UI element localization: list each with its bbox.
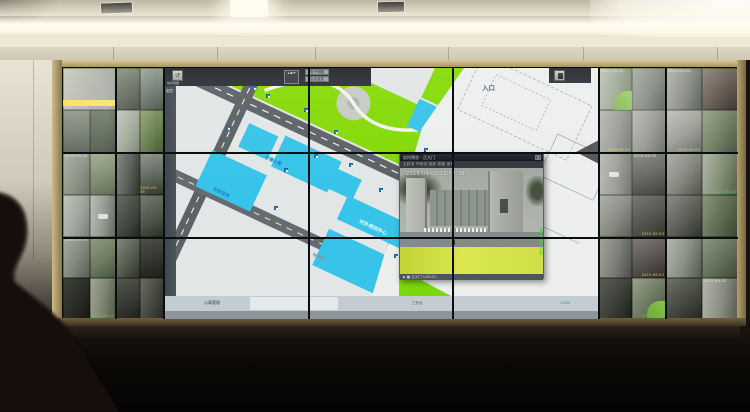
yellow-overlay-strip (63, 100, 116, 106)
layer-panel-label: 图层 (166, 89, 173, 94)
parked-car (98, 214, 108, 219)
camera-feed[interactable] (599, 195, 632, 237)
console-area-dark (0, 326, 750, 412)
camera-feed[interactable] (140, 195, 164, 237)
camera-feed[interactable]: 2015-09-03 (666, 110, 702, 153)
camera-feed[interactable] (632, 68, 666, 110)
map-label: 入口 (482, 82, 495, 92)
camera-feed[interactable] (116, 110, 140, 153)
camera-feed[interactable] (116, 237, 140, 278)
camera-feed[interactable] (116, 278, 140, 319)
ceiling (0, 0, 750, 47)
wall-seam (315, 47, 316, 60)
panel-bezel (665, 68, 668, 319)
map-pan-dpad[interactable]: ▴◂▸▾ (284, 70, 299, 84)
popup-title-bar[interactable]: 实时预览 - 正大门 × (400, 154, 543, 161)
status-segment (250, 297, 338, 310)
panel-bezel (63, 237, 738, 240)
camera-feed[interactable] (140, 68, 164, 110)
camera-feed[interactable] (90, 153, 116, 195)
feed-osd-timestamp: 2015-09-03 (714, 190, 736, 194)
reflection (60, 326, 740, 340)
parked-car (609, 172, 619, 177)
camera-feed[interactable] (116, 68, 140, 110)
camera-feed[interactable] (63, 110, 90, 153)
camera-feed[interactable] (702, 68, 738, 110)
panel-bezel (115, 68, 118, 319)
wall-seam (217, 47, 218, 60)
camera-feed[interactable] (666, 278, 702, 319)
camera-feed[interactable] (140, 278, 164, 319)
panel-bezel (598, 68, 601, 319)
ceiling-light-panel (230, 0, 268, 17)
camera-marker-icon[interactable] (314, 154, 318, 158)
status-mid-label: 工作台 (412, 301, 423, 306)
wall-frame (52, 60, 62, 326)
camera-feed[interactable] (666, 153, 702, 195)
camera-feed[interactable]: 2015-09-03 (90, 278, 116, 319)
camera-feed[interactable] (599, 237, 632, 278)
camera-feed[interactable]: 2015-09-03 (632, 153, 666, 195)
feed-osd-timestamp: 2015-09-03 (140, 186, 162, 194)
feed-osd-timestamp: 2015-09-03 (634, 154, 656, 158)
camera-feed[interactable]: 2015-09-03 (666, 68, 702, 110)
popup-video-frame: 2015-09-03 12:57:38 迎宾路东大门正大门 全景 (400, 168, 543, 274)
camera-feed[interactable] (666, 237, 702, 278)
map-bottom-strip (164, 311, 599, 319)
ceiling-fascia (0, 37, 750, 47)
cove-light-band (0, 16, 750, 37)
popup-control-bar[interactable]: ▶ ■ 正大门 CAM-01 (400, 274, 543, 280)
lawn-patch (614, 91, 632, 110)
feed-osd-timestamp: 2015-09-03 (668, 69, 690, 73)
camera-feed[interactable] (599, 153, 632, 195)
ceiling-vent (377, 1, 405, 13)
camera-marker-icon[interactable] (252, 86, 256, 90)
lawn (400, 247, 543, 274)
camera-feed[interactable] (63, 278, 90, 319)
camera-feed[interactable] (90, 195, 116, 237)
wall-frame (52, 318, 746, 326)
panel-bezel (163, 68, 166, 319)
camera-feed[interactable] (666, 195, 702, 237)
camera-feed[interactable] (116, 153, 140, 195)
wall-seam (717, 47, 718, 60)
trees (526, 176, 543, 206)
camera-feed[interactable]: 2015-09-03 (632, 237, 666, 278)
camera-marker-icon[interactable] (274, 206, 278, 210)
camera-feed[interactable] (702, 195, 738, 237)
popup-toolbar[interactable]: 主码流 子码流 回放 抓图 录像 (400, 161, 543, 168)
wall-frame (737, 60, 746, 326)
camera-feed[interactable]: 2015-09-03 (63, 237, 90, 278)
wall-seam (113, 47, 114, 60)
popup-timestamp: 2015-09-03 12:57:38 (406, 171, 465, 177)
camera-feed[interactable] (140, 110, 164, 153)
ceiling-vent (100, 1, 133, 14)
panel-bezel (308, 68, 311, 319)
map-toolbar-subtext: 综合地图 (167, 81, 179, 85)
camera-feed[interactable] (63, 195, 90, 237)
camera-feed[interactable] (90, 237, 116, 278)
camera-marker-icon[interactable] (284, 168, 288, 172)
map-toolbar-right (549, 68, 591, 83)
video-wall: 2015-09-032015-09-032015-09-032015-09-03… (62, 67, 737, 318)
feed-osd-timestamp: 2015-09-03 (704, 279, 726, 283)
map-toolbar: ⊕⊖◆□◎↺ 综合地图 (164, 68, 371, 86)
wall-frame (52, 60, 746, 67)
close-icon[interactable]: × (535, 155, 541, 160)
control-room-photo: 2015-09-032015-09-032015-09-032015-09-03… (0, 0, 750, 412)
person-icon (558, 73, 563, 79)
feed-osd-timestamp: 2015-09-03 (65, 154, 87, 158)
camera-marker-icon[interactable] (349, 163, 353, 167)
status-left-label: 公寓管理 (204, 300, 220, 306)
camera-marker-icon[interactable] (379, 188, 383, 192)
wall-seam (33, 60, 34, 260)
patrol-2-button[interactable] (554, 70, 565, 81)
distant-building (430, 190, 492, 226)
camera-marker-icon[interactable] (334, 130, 338, 134)
camera-feed[interactable] (599, 278, 632, 319)
camera-feed[interactable] (116, 195, 140, 237)
camera-marker-icon[interactable] (394, 254, 398, 258)
camera-feed[interactable]: 2015-09-03 (632, 195, 666, 237)
camera-feed[interactable] (702, 110, 738, 153)
status-scale-label: 1:500 (560, 301, 570, 305)
camera-feed[interactable]: 2015-09-03 (632, 278, 666, 319)
camera-feed[interactable] (63, 68, 116, 110)
map-status-bar: 公寓管理 工作台 1:500 (164, 296, 599, 311)
camera-feed[interactable] (702, 237, 738, 278)
camera-feed[interactable] (140, 237, 164, 278)
camera-feed[interactable]: 2015-09-03 (63, 153, 90, 195)
map-layer-sidebar[interactable]: 图层 (164, 86, 176, 296)
camera-feed[interactable]: 2015-09-03 (599, 110, 632, 153)
video-popup-window[interactable]: 实时预览 - 正大门 × 主码流 子码流 回放 抓图 录像 2015-09-03… (399, 153, 544, 279)
camera-marker-icon[interactable] (226, 126, 230, 130)
camera-feed[interactable]: 2015-09-03 (140, 153, 164, 195)
feed-osd-timestamp: 2015-09-03 (642, 273, 664, 277)
panel-bezel (452, 68, 455, 319)
feed-osd-timestamp: 2015-09-03 (642, 232, 664, 236)
camera-feed[interactable] (90, 110, 116, 153)
camera-feed[interactable]: 2015-09-03 (702, 278, 738, 319)
wall-seam (583, 47, 584, 60)
wall-seam (448, 47, 449, 60)
popup-title: 实时预览 - 正大门 (403, 154, 435, 161)
camera-marker-icon[interactable] (266, 94, 270, 98)
panel-bezel (63, 152, 738, 155)
camera-feed[interactable]: 2015-09-03 (599, 68, 632, 110)
back-wall-strip (0, 47, 750, 60)
camera-feed[interactable] (632, 110, 666, 153)
refresh-button[interactable]: ↺ (172, 70, 183, 81)
feed-osd-timestamp: 2015-09-03 (601, 69, 623, 73)
camera-feed[interactable]: 2015-09-03 (702, 153, 738, 195)
